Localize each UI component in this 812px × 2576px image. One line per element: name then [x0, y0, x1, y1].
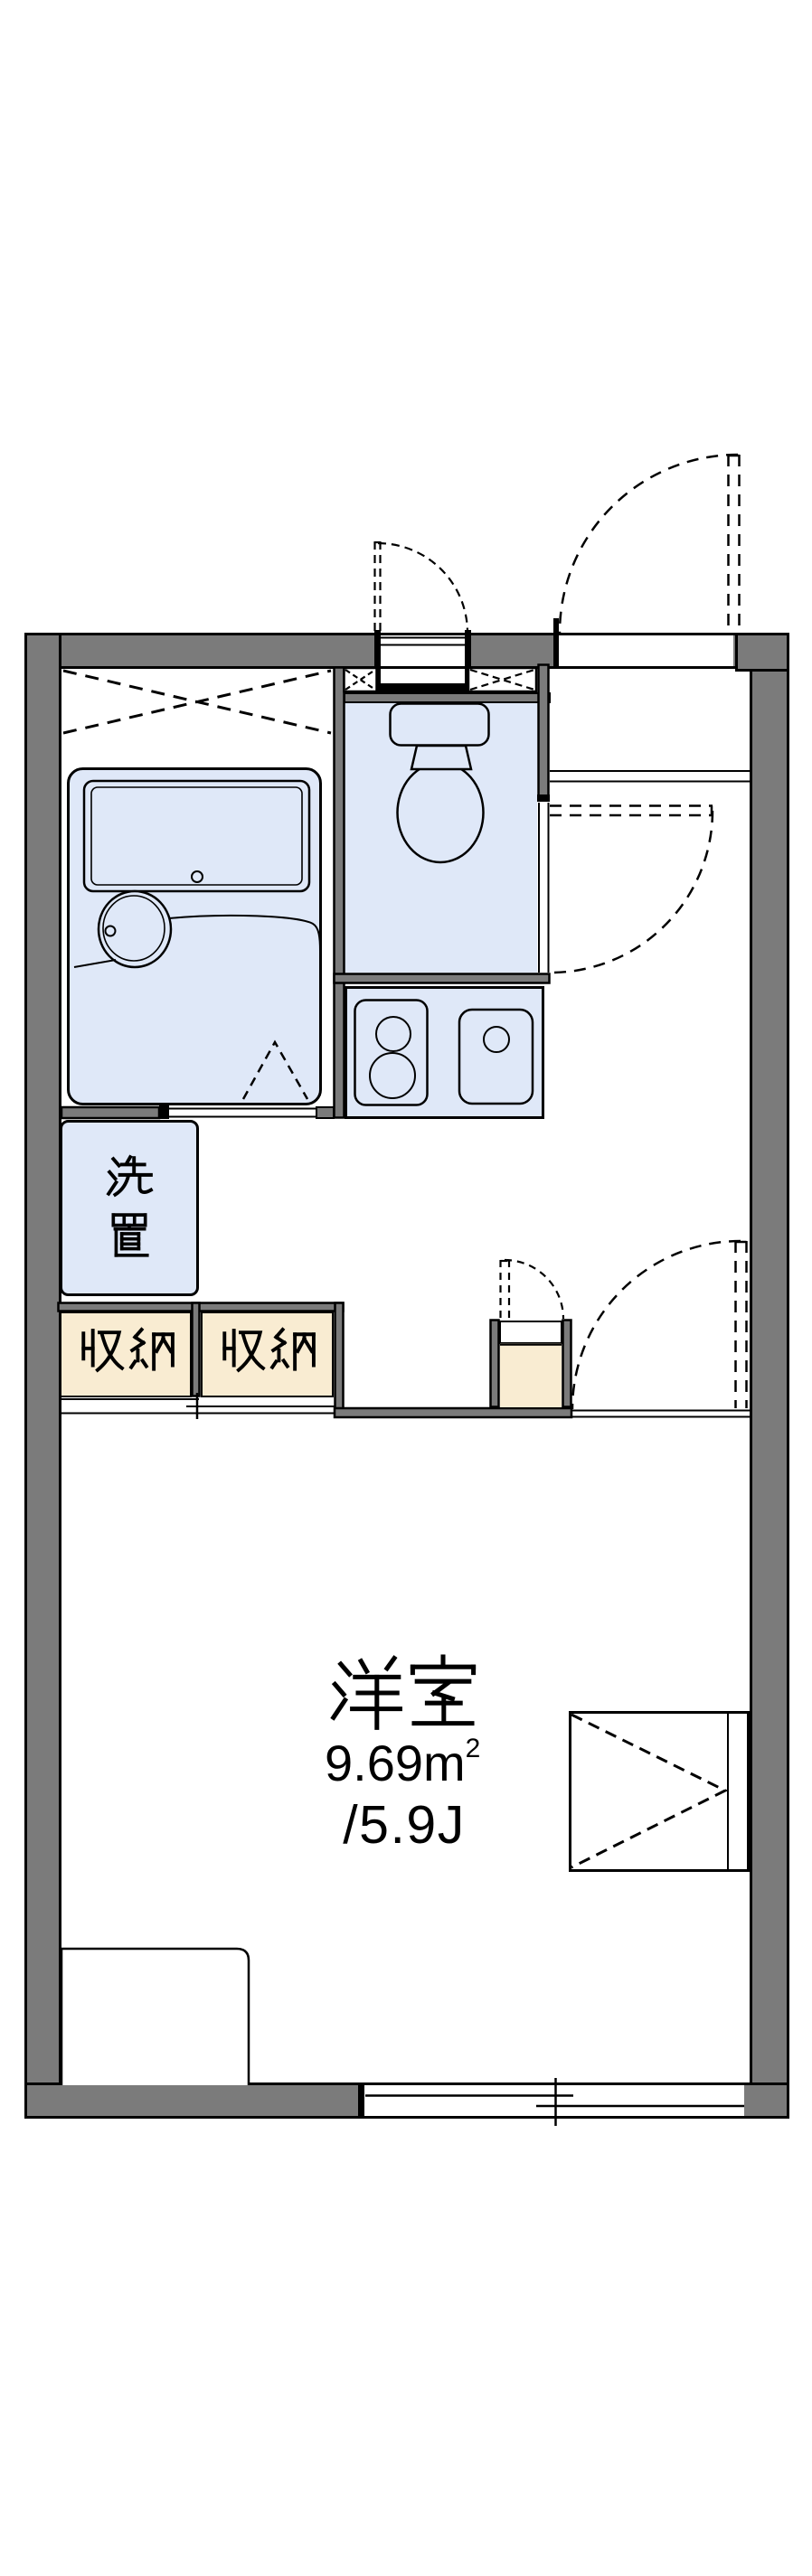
svg-text:9.69m2: 9.69m2 — [325, 1734, 480, 1791]
svg-text:/5.9J: /5.9J — [343, 1795, 465, 1855]
